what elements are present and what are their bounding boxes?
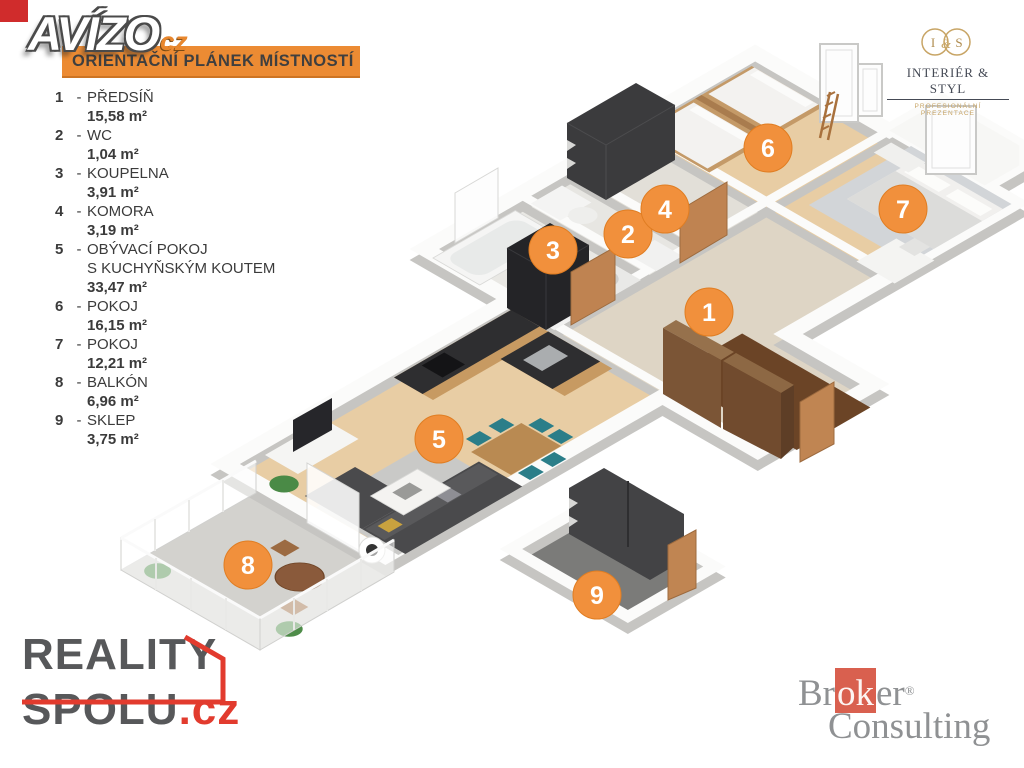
- reality-spolu-logo: REALITY SPOLU.cz: [22, 632, 252, 762]
- room-marker-9: 9: [573, 571, 621, 619]
- room-marker-5: 5: [415, 415, 463, 463]
- svg-text:5: 5: [432, 426, 446, 454]
- broker-consulting-logo: Broker® Consulting: [798, 672, 1018, 745]
- room-marker-4: 4: [641, 185, 689, 233]
- legend-item: 1-PŘEDSÍŇ: [55, 88, 305, 107]
- legend-item: 2-WC: [55, 126, 305, 145]
- room-legend: 1-PŘEDSÍŇ 15,58 m² 2-WC 1,04 m² 3-KOUPEL…: [55, 88, 305, 449]
- svg-text:I: I: [931, 35, 935, 50]
- interier-styl-tagline: PROFESIONÁLNÍ PREZENTACE: [887, 103, 1009, 117]
- svg-text:1: 1: [702, 299, 716, 327]
- svg-text:7: 7: [896, 196, 910, 224]
- legend-item: 3-KOUPELNA: [55, 164, 305, 183]
- avizo-text: AVÍZO: [28, 7, 158, 60]
- legend-item: 6-POKOJ: [55, 297, 305, 316]
- svg-text:9: 9: [590, 582, 604, 610]
- registered-mark: ®: [905, 683, 915, 698]
- house-outline: [22, 637, 223, 702]
- interier-styl-name: INTERIÉR & STYL: [887, 65, 1009, 100]
- room-marker-7: 7: [879, 185, 927, 233]
- room-marker-1: 1: [685, 288, 733, 336]
- avizo-tld: cz: [160, 26, 187, 56]
- room-marker-6: 6: [744, 124, 792, 172]
- reality-spolu-outline: [22, 632, 252, 762]
- svg-text:2: 2: [621, 221, 635, 249]
- svg-text:S: S: [955, 35, 962, 50]
- legend-item: 8-BALKÓN: [55, 373, 305, 392]
- interier-styl-monogram: I & S: [887, 26, 1009, 60]
- svg-text:6: 6: [761, 135, 775, 163]
- svg-text:8: 8: [241, 552, 255, 580]
- interier-styl-logo: I & S INTERIÉR & STYL PROFESIONÁLNÍ PREZ…: [887, 26, 1009, 117]
- legend-item: 7-POKOJ: [55, 335, 305, 354]
- svg-text:4: 4: [658, 196, 672, 224]
- legend-item: 4-KOMORA: [55, 202, 305, 221]
- broker-line2: Consulting: [828, 709, 1018, 745]
- legend-item: 5-OBÝVACÍ POKOJ: [55, 240, 305, 259]
- avizo-watermark: AVÍZOcz: [28, 10, 188, 57]
- legend-item: 9-SKLEP: [55, 411, 305, 430]
- room-marker-3: 3: [529, 226, 577, 274]
- svg-text:3: 3: [546, 237, 560, 265]
- room-marker-8: 8: [224, 541, 272, 589]
- svg-text:&: &: [941, 36, 952, 51]
